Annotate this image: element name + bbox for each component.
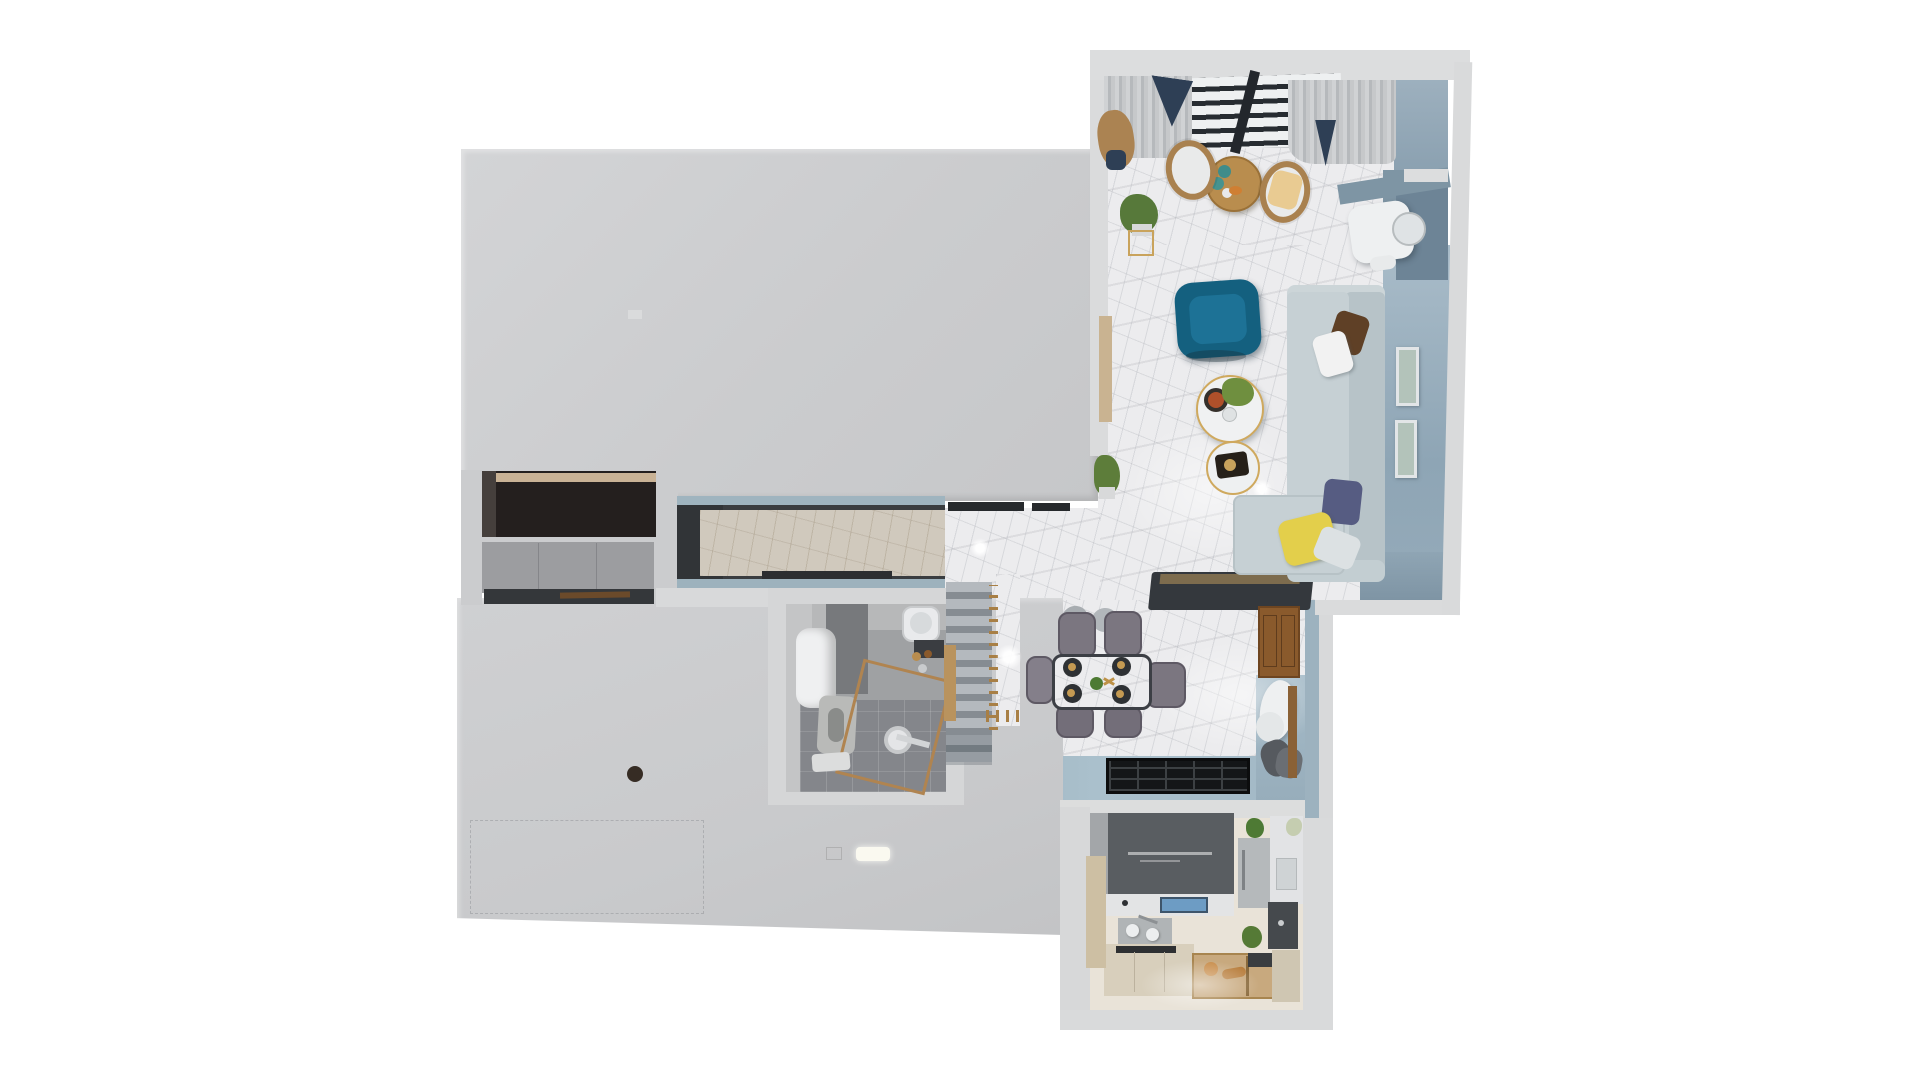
slab-panel-seam bbox=[470, 820, 704, 914]
kitchen-plant-1 bbox=[1246, 818, 1264, 838]
dining-chair-top-1 bbox=[1058, 612, 1096, 658]
kitchen-steel-handle bbox=[1242, 850, 1245, 890]
teal-armchair-seat bbox=[1188, 293, 1247, 345]
kitchen-plant-3 bbox=[1242, 926, 1262, 948]
closet-base-wood bbox=[560, 591, 630, 598]
stair-pendant-light bbox=[996, 644, 1022, 670]
kitchen-backsplash-text-line-2 bbox=[1140, 860, 1180, 862]
kitchen-jar-1 bbox=[1126, 924, 1139, 937]
bathroom-jar-1 bbox=[912, 652, 921, 661]
kitchen-side-shelf bbox=[1086, 856, 1106, 968]
wall-art-frame-1 bbox=[1396, 347, 1419, 406]
closet-door-line-2 bbox=[596, 543, 597, 591]
hall-pendant-light bbox=[970, 538, 990, 558]
balcony-dish bbox=[1229, 186, 1242, 195]
kitchen-right-wall bbox=[1303, 818, 1333, 1030]
stair-bottom-shadow bbox=[946, 735, 992, 765]
wall-art-frame-2 bbox=[1395, 420, 1417, 478]
dining-chair-top-2 bbox=[1104, 611, 1142, 657]
coat-rack bbox=[1288, 686, 1297, 778]
dining-chair-left bbox=[1026, 656, 1054, 704]
slab-strip-right bbox=[654, 470, 678, 605]
coffee-table-cup bbox=[1222, 407, 1237, 422]
bathroom-step-scale bbox=[811, 752, 850, 773]
closet-door-line-1 bbox=[538, 543, 539, 591]
teal-armchair-shadow bbox=[1186, 350, 1246, 362]
kitchen-backsplash bbox=[1106, 813, 1234, 899]
dining-plate-3-food bbox=[1067, 689, 1075, 697]
dining-chair-right bbox=[1146, 662, 1186, 708]
slab-light-outline bbox=[826, 847, 842, 860]
dining-plate-2-food bbox=[1117, 661, 1125, 669]
kitchen-cabinet-top-strip bbox=[1116, 946, 1176, 953]
console-desk-inlay bbox=[1159, 574, 1300, 584]
transom-slot-2 bbox=[1032, 503, 1070, 511]
kitchen-backsplash-text-line-1 bbox=[1128, 852, 1212, 855]
kitchen-cabinet-line-1 bbox=[1134, 952, 1135, 992]
living-south-wall-white bbox=[1315, 600, 1460, 615]
kitchen-tall-cabinet-mirror bbox=[1276, 858, 1297, 890]
bathroom-jar-2 bbox=[924, 650, 932, 658]
slab-strip-left bbox=[461, 470, 482, 605]
dining-east-wall-blue bbox=[1305, 600, 1319, 818]
balcony-plant-stand bbox=[1128, 230, 1154, 256]
wood-cabinet-panel-2 bbox=[1281, 615, 1295, 667]
balcony-living-wall-stub bbox=[1404, 169, 1448, 182]
closet-inset bbox=[482, 542, 654, 593]
galley-top-lip bbox=[677, 496, 945, 505]
kitchen-dark-appliance bbox=[1268, 902, 1298, 949]
slab-light-pill bbox=[856, 847, 890, 861]
kitchen-appliance-knob bbox=[1278, 920, 1284, 926]
kitchen-counter-knob bbox=[1122, 900, 1128, 906]
dining-centerpiece-plant bbox=[1090, 677, 1103, 690]
rattan-basket-navy-cushion bbox=[1106, 150, 1126, 170]
kitchen-bottom-wall bbox=[1060, 1010, 1333, 1030]
floor-plan-render bbox=[0, 0, 1920, 1080]
west-wall-plant-pot bbox=[1099, 487, 1115, 499]
slab-dark-dot bbox=[627, 766, 643, 782]
dining-plate-1-food bbox=[1068, 663, 1076, 671]
dining-chair-bottom-2 bbox=[1104, 706, 1142, 738]
dining-plate-4-food bbox=[1116, 690, 1124, 698]
kitchen-jar-2 bbox=[1146, 928, 1159, 941]
kitchen-step-platform bbox=[1272, 950, 1300, 1002]
dining-east-wall-white bbox=[1319, 600, 1333, 818]
galley-marble-wall bbox=[700, 510, 945, 576]
balcony-right-wall-blue bbox=[1394, 80, 1448, 176]
bathroom-sink-basin bbox=[910, 612, 932, 634]
wardrobe-top-trim bbox=[494, 473, 656, 482]
entry-sculpture-base bbox=[1256, 712, 1284, 742]
water-heater-cap bbox=[1392, 212, 1426, 246]
kitchen-induction-hob bbox=[1160, 897, 1208, 913]
entry-floor-grate bbox=[1106, 758, 1250, 794]
west-wall-wood-decor bbox=[1099, 316, 1112, 422]
transom-slot-1 bbox=[948, 502, 1024, 511]
bathroom-door bbox=[944, 645, 956, 721]
stair-railing-return bbox=[986, 710, 1024, 722]
kitchen-floor-light bbox=[1140, 960, 1260, 1010]
roof-slab-upper bbox=[461, 149, 1098, 501]
wardrobe-end-shadow bbox=[482, 471, 496, 537]
slab-small-mark bbox=[628, 310, 642, 319]
balcony-curtain-right bbox=[1288, 80, 1396, 164]
coffee-table-plant bbox=[1222, 378, 1254, 406]
coffee-table-tray-dish bbox=[1224, 459, 1236, 471]
shower-tray-slot bbox=[828, 708, 844, 742]
balcony-teal-plate-1 bbox=[1218, 165, 1231, 178]
wood-cabinet-panel-1 bbox=[1263, 615, 1277, 667]
